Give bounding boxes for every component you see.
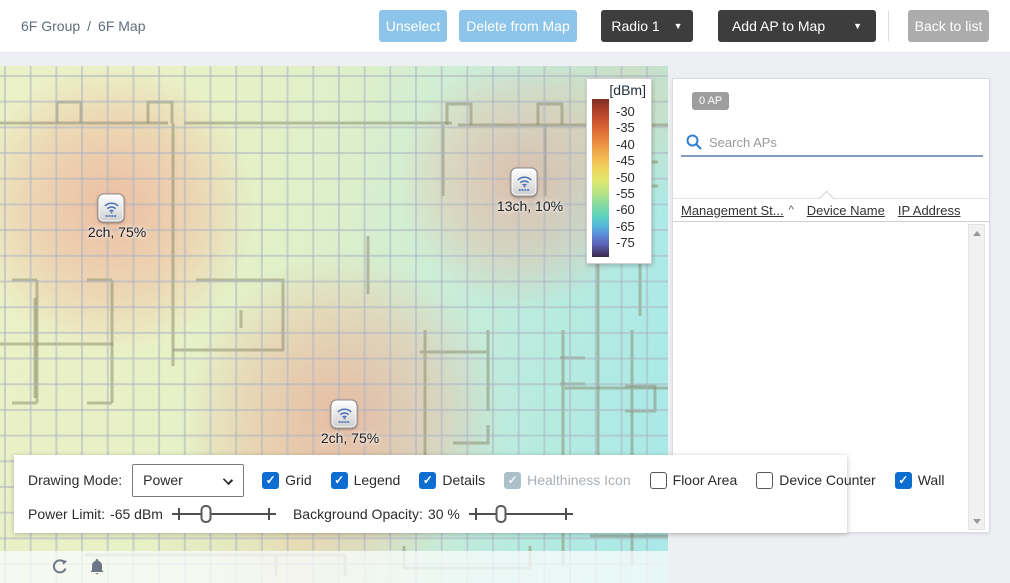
legend-tick: -35 [616,121,635,134]
legend-tick: -55 [616,187,635,200]
scroll-up-icon[interactable] [969,225,984,241]
checkbox-row: ✓Grid✓Legend✓Details✓Healthiness IconFlo… [262,472,944,489]
column-header-label: IP Address [898,203,961,218]
ap-label: 13ch, 10% [497,198,563,214]
column-header-label: Management St... [681,203,784,218]
legend-tick: -40 [616,138,635,151]
breadcrumb: 6F Group / 6F Map [21,18,146,34]
checkbox-box[interactable] [756,472,773,489]
ap-marker[interactable] [331,400,358,429]
legend-tick: -60 [616,203,635,216]
power-limit-label: Power Limit: [28,506,105,522]
checkbox-floor-area[interactable]: Floor Area [650,472,738,489]
checkbox-box[interactable]: ✓ [419,472,436,489]
breadcrumb-group[interactable]: 6F Group [21,18,80,34]
checkbox-wall[interactable]: ✓Wall [895,472,945,489]
refresh-icon[interactable] [50,557,70,577]
legend-tick: -30 [616,105,635,118]
vertical-scrollbar[interactable] [968,224,985,530]
background-opacity-value: 30 % [428,506,460,522]
ap-marker[interactable] [98,194,125,223]
unselect-label: Unselect [386,18,440,34]
ap-label: 2ch, 75% [321,430,379,446]
legend-ticks: -30-35-40-45-50-55-60-65-75 [609,99,635,257]
map-footer-strip [0,551,668,583]
sort-ascending-icon: ^ [789,204,794,216]
checkbox-label: Grid [285,472,311,488]
drawing-mode-select[interactable]: Power [132,464,244,497]
slider-thumb[interactable] [496,505,507,523]
column-header-management-st[interactable]: Management St...^ [681,203,794,218]
radio-select-label: Radio 1 [611,18,659,34]
breadcrumb-map[interactable]: 6F Map [98,18,145,34]
search-input[interactable] [703,131,983,154]
drawing-mode-label: Drawing Mode: [28,472,122,488]
column-header-device-name[interactable]: Device Name [807,203,885,218]
legend-tick: -45 [616,154,635,167]
checkbox-box: ✓ [504,472,521,489]
slider-thumb[interactable] [201,505,212,523]
ap-count-badge: 0 AP [692,92,729,110]
unselect-button[interactable]: Unselect [379,10,447,42]
checkbox-device-counter[interactable]: Device Counter [756,472,876,489]
drawing-mode-value: Power [143,472,183,488]
chevron-down-icon: ▼ [674,21,683,31]
column-header-ip-address[interactable]: IP Address [898,203,961,218]
ap-label: 2ch, 75% [88,224,146,240]
delete-from-map-button[interactable]: Delete from Map [459,10,577,42]
background-opacity-slider[interactable] [469,504,573,524]
notification-bell-icon[interactable] [88,557,106,577]
checkbox-grid[interactable]: ✓Grid [262,472,311,489]
add-ap-label: Add AP to Map [732,18,825,34]
legend-title: [dBm] [592,83,646,98]
delete-from-map-label: Delete from Map [466,18,569,34]
column-header-label: Device Name [807,203,885,218]
ap-marker[interactable] [511,168,538,197]
background-opacity-label: Background Opacity: [293,506,423,522]
checkbox-label: Details [442,472,485,488]
breadcrumb-separator: / [87,18,91,34]
ap-search [681,129,983,157]
checkbox-box[interactable] [650,472,667,489]
checkbox-box[interactable]: ✓ [331,472,348,489]
checkbox-label: Healthiness Icon [527,472,631,488]
toolbar-divider [888,11,889,41]
legend-color-scale [592,99,609,257]
map-controls-panel: Drawing Mode: Power ✓Grid✓Legend✓Details… [14,455,847,533]
top-toolbar: 6F Group / 6F Map Unselect Delete from M… [0,0,1010,53]
checkbox-label: Floor Area [673,472,738,488]
checkbox-legend[interactable]: ✓Legend [331,472,401,489]
radio-select-dropdown[interactable]: Radio 1 ▼ [601,10,693,42]
back-to-list-label: Back to list [915,18,983,34]
power-limit-value: -65 dBm [110,506,163,522]
checkbox-box[interactable]: ✓ [262,472,279,489]
legend-tick: -50 [616,171,635,184]
dbm-legend: [dBm] -30-35-40-45-50-55-60-65-75 [586,78,652,264]
chevron-down-icon: ▼ [853,21,862,31]
checkbox-box[interactable]: ✓ [895,472,912,489]
checkbox-details[interactable]: ✓Details [419,472,485,489]
checkbox-label: Legend [354,472,401,488]
back-to-list-button[interactable]: Back to list [908,10,989,42]
checkbox-label: Device Counter [779,472,876,488]
scroll-down-icon[interactable] [969,513,984,529]
legend-tick: -75 [616,236,635,249]
wireless-map-page: 6F Group / 6F Map Unselect Delete from M… [0,0,1010,583]
power-limit-slider[interactable] [172,504,276,524]
chevron-down-icon [223,474,233,484]
add-ap-to-map-dropdown[interactable]: Add AP to Map ▼ [718,10,876,42]
checkbox-label: Wall [918,472,945,488]
table-header-row: Management St...^Device NameIP Address [673,198,989,222]
checkbox-healthiness-icon: ✓Healthiness Icon [504,472,631,489]
legend-tick: -65 [616,220,635,233]
search-icon [685,133,703,151]
